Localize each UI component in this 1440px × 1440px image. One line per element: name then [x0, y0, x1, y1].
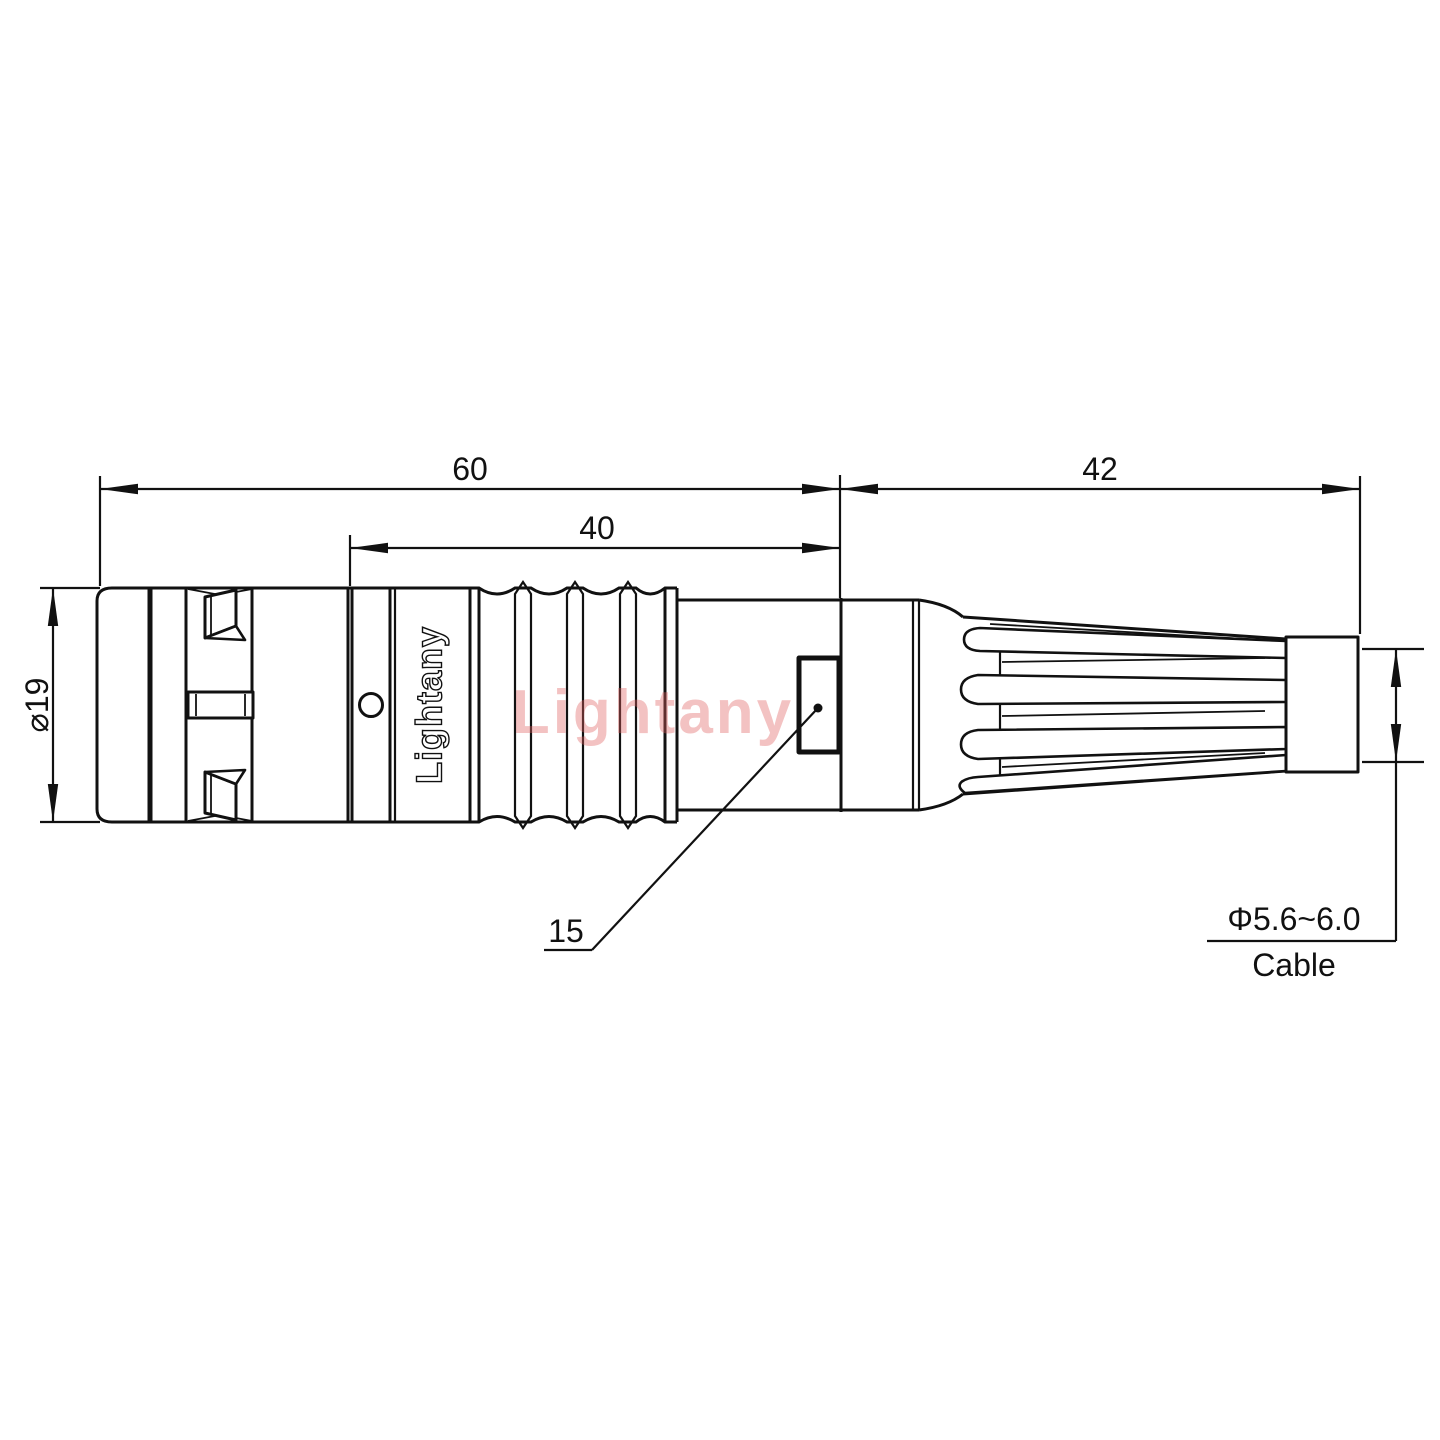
connector-technical-drawing: Lightany — [0, 0, 1440, 1440]
dim-label-15: 15 — [548, 913, 584, 949]
dim-label-cable: Cable — [1252, 947, 1336, 983]
dim-label-40: 40 — [579, 510, 615, 546]
leader-dot — [814, 704, 823, 713]
dim-label-42: 42 — [1082, 451, 1118, 487]
watermark-text: Lightany — [512, 678, 794, 747]
dim-label-60: 60 — [452, 451, 488, 487]
latch-window — [188, 692, 253, 718]
engraved-brand-text: Lightany — [409, 626, 450, 784]
dim-label-cable-range: Φ5.6~6.0 — [1227, 901, 1360, 937]
dim-label-dia19: ⌀19 — [19, 678, 55, 733]
pilot-hole — [360, 694, 383, 717]
technical-drawing-page: Lightany — [0, 0, 1440, 1440]
cable-sleeve — [1286, 637, 1358, 772]
